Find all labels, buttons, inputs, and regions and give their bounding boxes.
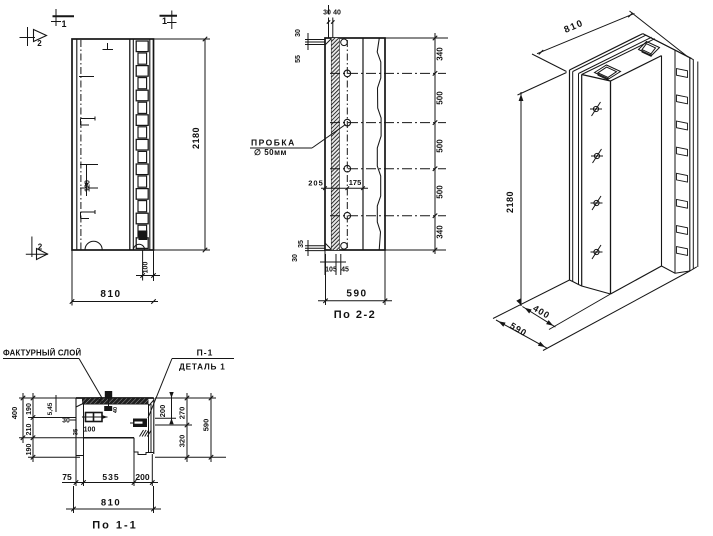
svg-text:120: 120 <box>85 180 92 192</box>
svg-text:590: 590 <box>346 289 367 300</box>
svg-text:По 2-2: По 2-2 <box>334 309 377 321</box>
svg-text:2180: 2180 <box>191 127 201 149</box>
svg-text:205: 205 <box>308 179 324 188</box>
svg-text:270: 270 <box>178 407 187 420</box>
svg-text:40: 40 <box>333 10 341 17</box>
svg-text:500: 500 <box>436 139 445 153</box>
svg-text:590: 590 <box>202 419 211 432</box>
svg-text:1: 1 <box>162 16 167 26</box>
svg-text:105: 105 <box>325 267 337 274</box>
svg-text:190: 190 <box>26 403 33 415</box>
svg-text:175: 175 <box>349 178 362 187</box>
svg-text:200: 200 <box>135 472 149 482</box>
svg-text:30: 30 <box>292 254 299 262</box>
svg-text:30: 30 <box>323 10 331 17</box>
svg-text:5,45: 5,45 <box>47 402 54 415</box>
svg-text:210: 210 <box>26 424 33 436</box>
svg-text:30: 30 <box>62 418 70 425</box>
svg-text:40: 40 <box>113 407 119 413</box>
svg-text:П-1: П-1 <box>197 348 214 358</box>
svg-text:320: 320 <box>178 435 187 448</box>
svg-text:∅ 50мм: ∅ 50мм <box>254 148 287 157</box>
svg-text:По 1-1: По 1-1 <box>92 520 138 532</box>
svg-text:100: 100 <box>143 262 150 274</box>
svg-text:55: 55 <box>295 55 302 63</box>
svg-text:45: 45 <box>341 267 349 274</box>
svg-text:1: 1 <box>61 19 66 29</box>
svg-text:810: 810 <box>100 289 121 300</box>
svg-text:35: 35 <box>298 240 305 248</box>
svg-text:2: 2 <box>37 39 42 48</box>
svg-text:500: 500 <box>436 185 445 199</box>
svg-text:2180: 2180 <box>505 191 515 213</box>
svg-text:ПРОБКА: ПРОБКА <box>251 138 296 148</box>
svg-text:30: 30 <box>295 29 302 37</box>
svg-text:ФАКТУРНЫЙ СЛОЙ: ФАКТУРНЫЙ СЛОЙ <box>3 349 81 358</box>
svg-text:340: 340 <box>436 47 445 61</box>
svg-text:500: 500 <box>436 91 445 105</box>
svg-text:ДЕТАЛЬ 1: ДЕТАЛЬ 1 <box>179 363 226 372</box>
svg-text:340: 340 <box>436 225 445 239</box>
svg-text:35: 35 <box>74 428 80 435</box>
svg-text:2: 2 <box>38 243 43 252</box>
svg-text:810: 810 <box>101 498 121 509</box>
svg-text:190: 190 <box>26 444 33 456</box>
svg-text:535: 535 <box>102 472 119 482</box>
svg-text:75: 75 <box>62 472 72 482</box>
svg-text:100: 100 <box>84 427 96 434</box>
svg-text:50: 50 <box>98 397 104 403</box>
svg-text:200: 200 <box>158 405 167 418</box>
svg-text:400: 400 <box>10 407 19 420</box>
